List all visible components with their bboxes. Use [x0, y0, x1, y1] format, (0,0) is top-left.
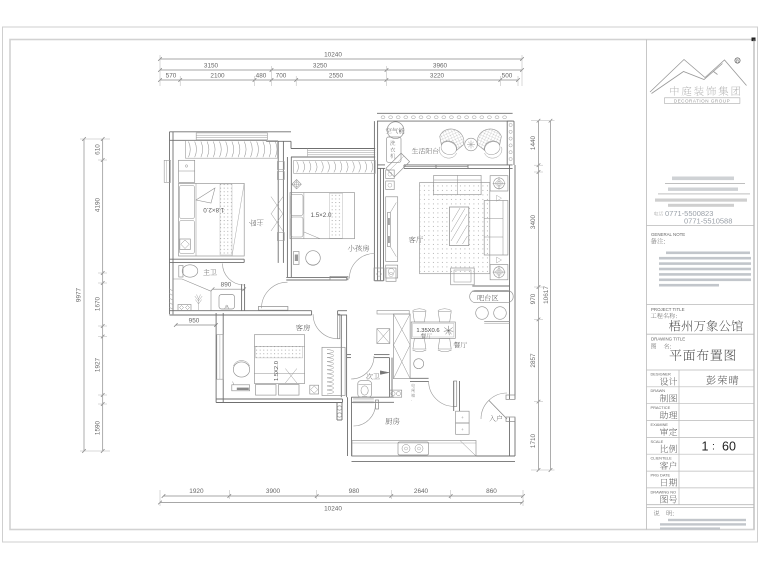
svg-text:DRAWING TITLE: DRAWING TITLE: [651, 337, 685, 342]
svg-text:EXAMINE: EXAMINE: [651, 422, 669, 427]
svg-text:950: 950: [189, 318, 200, 325]
svg-text:3250: 3250: [313, 63, 328, 70]
svg-text:PROJECT TITLE: PROJECT TITLE: [651, 307, 685, 312]
svg-text::: :: [712, 441, 715, 453]
svg-text:970: 970: [530, 293, 537, 304]
svg-text:0771-5510588: 0771-5510588: [684, 217, 732, 226]
svg-text:2550: 2550: [329, 73, 344, 80]
svg-text:3900: 3900: [266, 488, 281, 495]
svg-text:R: R: [736, 58, 739, 63]
svg-text:10240: 10240: [324, 506, 342, 513]
svg-text:1.35X0.6: 1.35X0.6: [416, 328, 439, 334]
svg-text:GENERAL NOTE: GENERAL NOTE: [651, 232, 685, 237]
svg-text:PRG DATE: PRG DATE: [651, 472, 671, 477]
svg-text:890: 890: [221, 282, 232, 289]
svg-text:PRACTICE: PRACTICE: [651, 405, 671, 410]
svg-text:10617: 10617: [543, 286, 550, 304]
svg-text:+: +: [461, 415, 464, 420]
svg-text:4190: 4190: [95, 197, 102, 212]
svg-text:1.5X2.0: 1.5X2.0: [274, 361, 280, 381]
svg-text:3400: 3400: [530, 214, 537, 229]
svg-text:1670: 1670: [95, 296, 102, 311]
svg-text:700: 700: [276, 73, 287, 80]
svg-text:2640: 2640: [414, 488, 429, 495]
svg-text:480: 480: [256, 73, 267, 80]
svg-text:SCALE: SCALE: [651, 439, 664, 444]
svg-text:570: 570: [166, 73, 177, 80]
svg-text:860: 860: [486, 488, 497, 495]
svg-text:60: 60: [722, 440, 736, 454]
svg-text:DESIGNER: DESIGNER: [651, 371, 672, 376]
svg-text:1920: 1920: [189, 488, 204, 495]
svg-text:2857: 2857: [530, 353, 537, 368]
svg-text:9977: 9977: [76, 287, 83, 302]
svg-text:1440: 1440: [530, 135, 537, 150]
svg-text:DECORATION GROUP: DECORATION GROUP: [674, 99, 730, 104]
svg-text:1927: 1927: [95, 357, 102, 372]
svg-text:1.5×2.0: 1.5×2.0: [311, 212, 332, 219]
svg-text:+: +: [461, 427, 464, 432]
svg-text:CLIENTELE: CLIENTELE: [651, 456, 673, 461]
svg-text:1.8×2.0: 1.8×2.0: [203, 206, 224, 213]
svg-text:10240: 10240: [324, 52, 342, 59]
svg-text:2100: 2100: [210, 73, 225, 80]
svg-text:3220: 3220: [430, 73, 445, 80]
svg-text:3150: 3150: [204, 63, 219, 70]
svg-text:500: 500: [502, 73, 513, 80]
svg-text:1590: 1590: [95, 420, 102, 435]
svg-text:1: 1: [702, 440, 709, 454]
svg-text:980: 980: [349, 488, 360, 495]
svg-text:610: 610: [95, 144, 102, 155]
svg-text:DRAWN: DRAWN: [651, 388, 666, 393]
svg-text:DRAWING NO: DRAWING NO: [651, 489, 677, 494]
svg-text:3960: 3960: [433, 63, 448, 70]
svg-text:1710: 1710: [530, 433, 537, 448]
